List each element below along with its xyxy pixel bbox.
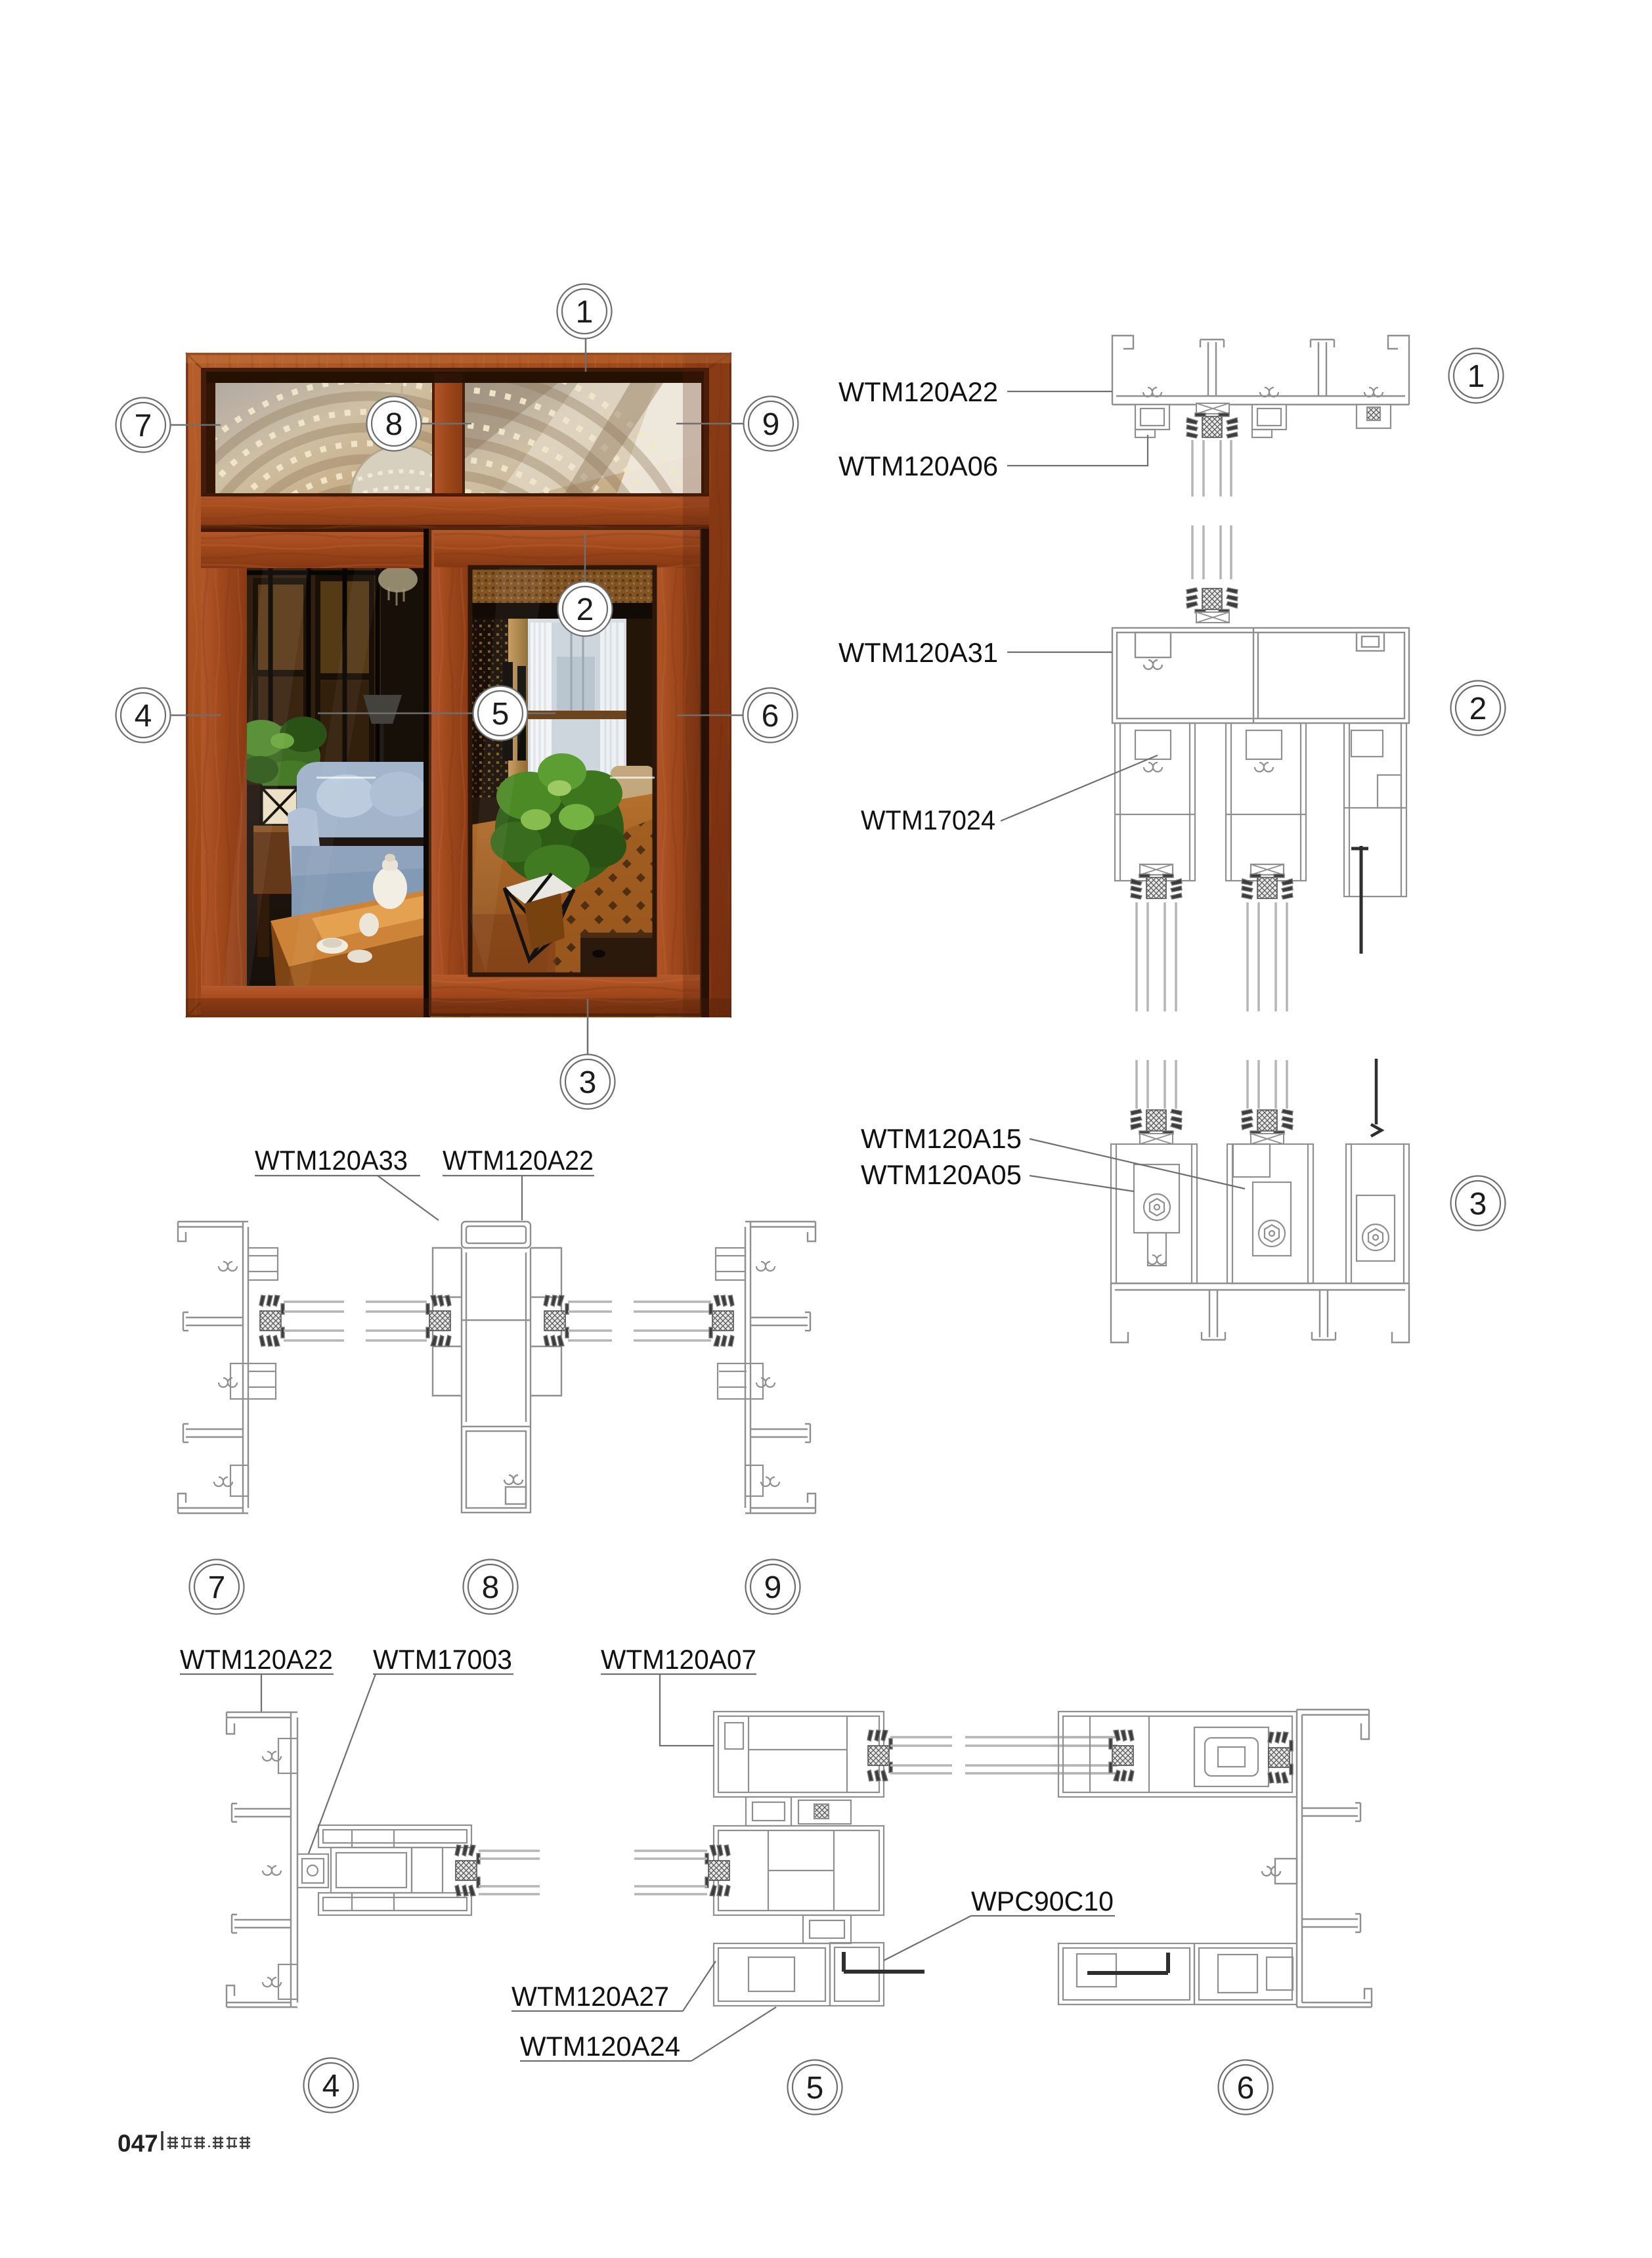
svg-text:5: 5 [492, 697, 510, 732]
svg-text:WTM17003: WTM17003 [373, 1644, 512, 1675]
svg-text:WTM120A22: WTM120A22 [443, 1145, 594, 1176]
svg-text:WPC90C10: WPC90C10 [971, 1886, 1114, 1916]
svg-text:5: 5 [806, 2071, 824, 2106]
svg-text:047: 047 [118, 2130, 158, 2157]
svg-text:1: 1 [576, 295, 594, 330]
svg-text:2: 2 [576, 592, 594, 627]
svg-text:6: 6 [762, 699, 779, 734]
svg-text:9: 9 [764, 1570, 782, 1605]
svg-text:7: 7 [208, 1570, 226, 1605]
svg-text:9: 9 [762, 407, 780, 442]
svg-text:7: 7 [135, 409, 152, 443]
svg-text:WTM120A07: WTM120A07 [601, 1644, 756, 1675]
svg-text:8: 8 [385, 407, 403, 442]
svg-text:WTM120A24: WTM120A24 [520, 2031, 680, 2062]
svg-text:WTM120A05: WTM120A05 [861, 1159, 1022, 1190]
svg-text:WTM120A15: WTM120A15 [861, 1123, 1022, 1154]
svg-text:WTM120A27: WTM120A27 [511, 1981, 669, 2012]
svg-text:3: 3 [1469, 1187, 1487, 1222]
svg-text:6: 6 [1237, 2071, 1255, 2106]
svg-text:1: 1 [1467, 359, 1485, 394]
svg-text:WTM120A22: WTM120A22 [180, 1644, 333, 1675]
svg-text:WTM120A22: WTM120A22 [838, 376, 998, 407]
svg-text:WTM120A06: WTM120A06 [838, 451, 998, 481]
svg-text:WTM17024: WTM17024 [861, 805, 995, 835]
svg-text:2: 2 [1469, 692, 1487, 726]
svg-text:WTM120A33: WTM120A33 [255, 1145, 408, 1176]
svg-text:4: 4 [322, 2069, 340, 2104]
svg-text:4: 4 [135, 699, 152, 734]
svg-text:8: 8 [482, 1570, 500, 1605]
svg-text:WTM120A31: WTM120A31 [838, 637, 998, 668]
svg-text:3: 3 [579, 1065, 597, 1100]
